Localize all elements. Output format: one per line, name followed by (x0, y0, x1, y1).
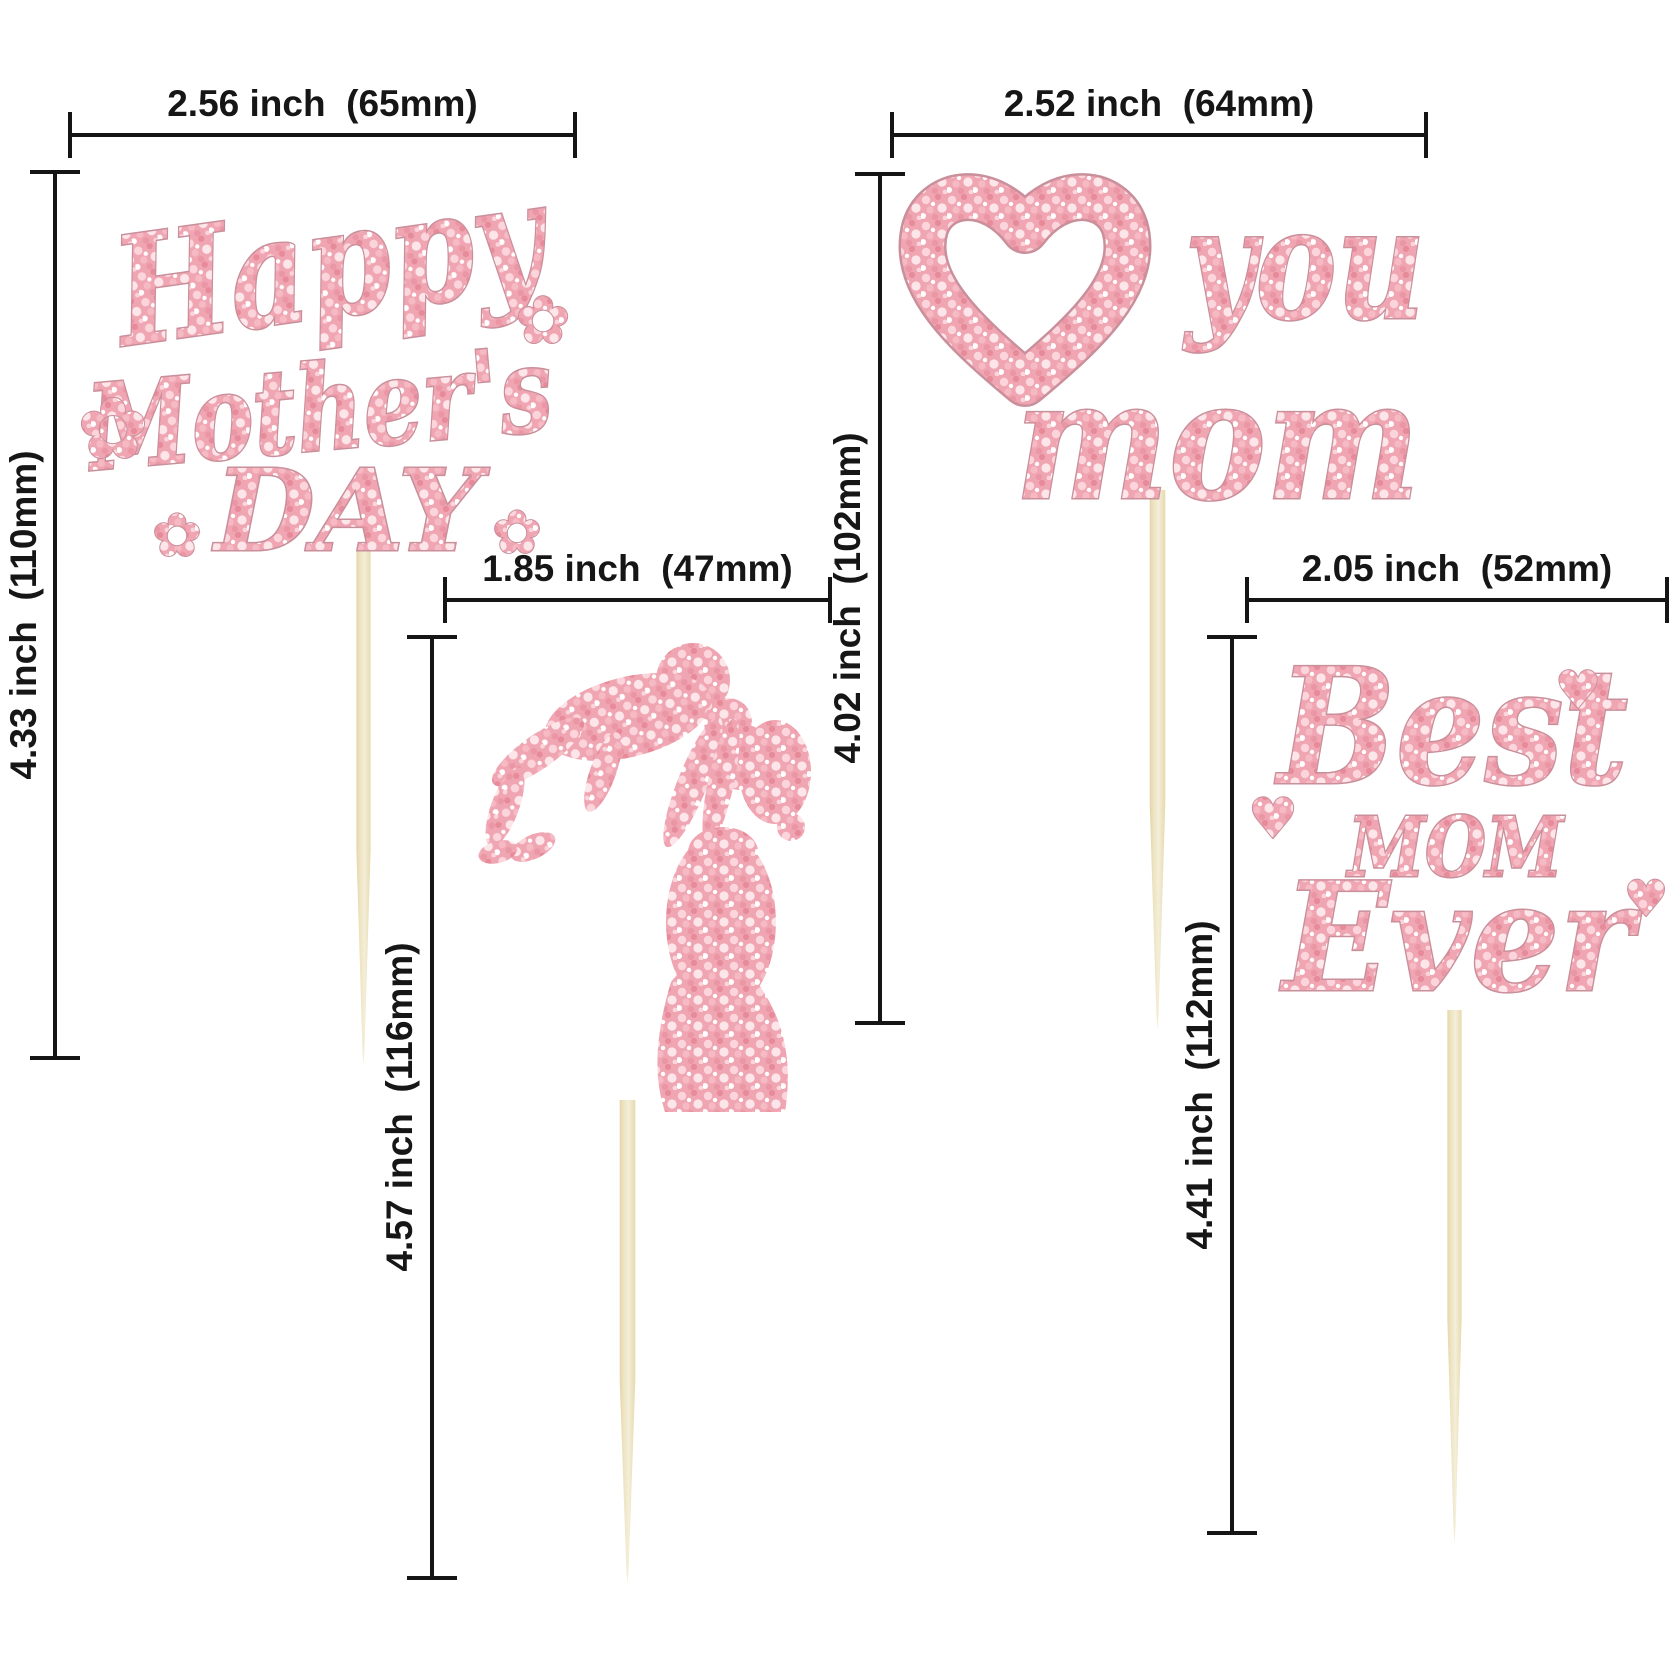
heart-icon: ♥ (1248, 787, 1298, 852)
toothpick-stick-love-you-mom (1146, 490, 1169, 1030)
product-dimension-diagram: Happy Mother's DAY ✿ ✿ ✿ ✿ 2.56 inch (65… (0, 0, 1680, 1680)
width-dimension-line-happy-mothers-day (68, 133, 577, 137)
width-dimension-line-best-mom-ever (1245, 598, 1669, 602)
flower-icon: ✿ (515, 282, 570, 359)
width-dimension-line-mother-child (443, 598, 832, 602)
mother-hair (739, 720, 811, 824)
mom-text: mom (1015, 343, 1420, 537)
width-dimension-label-happy-mothers-day: 2.56 inch (65mm) (68, 83, 577, 125)
mother-hair-curl (777, 813, 805, 841)
height-dimension-line-happy-mothers-day (53, 170, 57, 1060)
height-dimension-line-love-you-mom (878, 172, 882, 1025)
mother-child-silhouette (476, 643, 811, 1112)
height-dimension-line-mother-child (430, 635, 434, 1580)
mother-skirt (657, 957, 787, 1112)
best-mom-ever-topper: Best MOM Ever ♥ ♥ ♥ (1248, 638, 1668, 1033)
width-dimension-label-love-you-mom: 2.52 inch (64mm) (890, 83, 1428, 125)
height-dimension-label-happy-mothers-day: 4.33 inch (110mm) (1, 380, 47, 850)
height-dimension-label-best-mom-ever: 4.41 inch (112mm) (1177, 850, 1223, 1320)
ever-text: Ever (1279, 850, 1642, 1026)
toothpick-stick-best-mom-ever (1444, 1010, 1465, 1543)
width-dimension-label-mother-child: 1.85 inch (47mm) (443, 548, 832, 590)
height-dimension-label-mother-child: 4.57 inch (116mm) (377, 872, 423, 1342)
mother-child-silhouette-topper (443, 622, 833, 1112)
height-dimension-label-love-you-mom: 4.02 inch (102mm) (825, 363, 871, 833)
height-dimension-line-best-mom-ever (1230, 635, 1234, 1535)
width-dimension-label-best-mom-ever: 2.05 inch (52mm) (1245, 548, 1669, 590)
child-foot (476, 836, 520, 868)
heart-icon: ♥ (1555, 661, 1602, 721)
toothpick-stick-mother-child (616, 1100, 639, 1583)
toothpick-stick-happy-mothers-day (353, 550, 374, 1065)
love-you-mom-topper: you mom (895, 168, 1430, 513)
flower-icon: ✿ (77, 380, 148, 479)
you-text: you (1183, 172, 1425, 355)
happy-mothers-day-topper: Happy Mother's DAY ✿ ✿ ✿ ✿ (65, 168, 575, 560)
flower-icon: ✿ (152, 501, 202, 571)
width-dimension-line-love-you-mom (890, 133, 1428, 137)
heart-icon: ♥ (1624, 870, 1669, 928)
